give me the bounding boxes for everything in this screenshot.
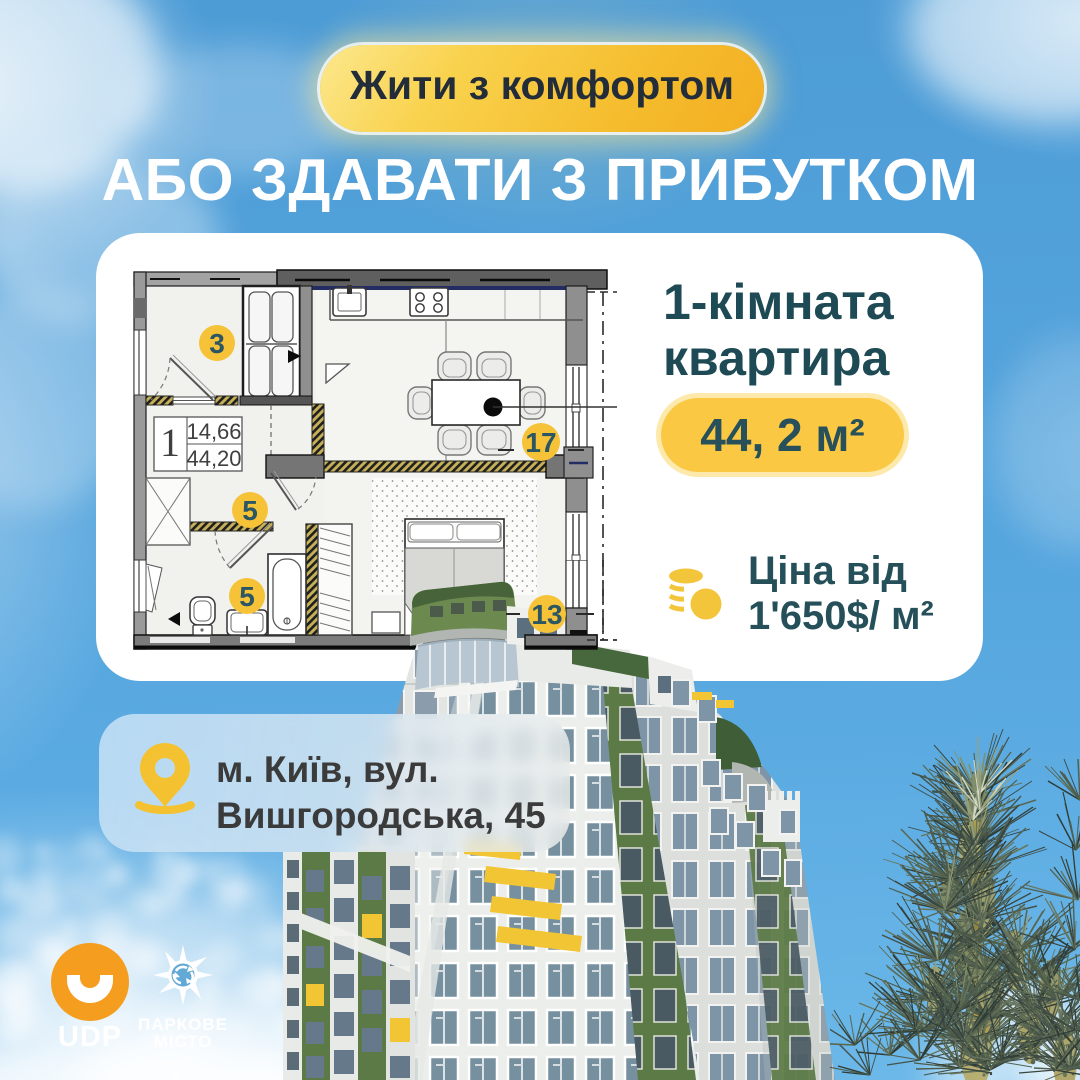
svg-text:3: 3 [209,328,225,359]
svg-text:МІСТО: МІСТО [154,1032,213,1050]
svg-text:5: 5 [242,495,258,526]
svg-text:44,20: 44,20 [186,446,241,471]
svg-text:1: 1 [160,420,180,465]
svg-text:13: 13 [531,599,562,630]
svg-text:14,66: 14,66 [186,419,241,444]
svg-text:17: 17 [525,427,556,458]
svg-text:UDP: UDP [58,1021,122,1053]
